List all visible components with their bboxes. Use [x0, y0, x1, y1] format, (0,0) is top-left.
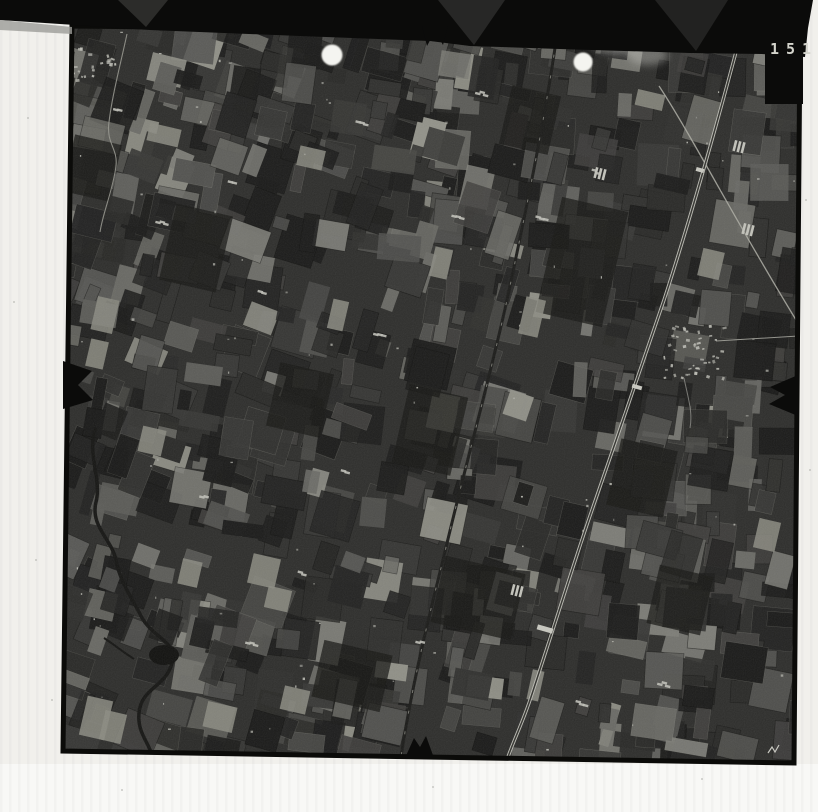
white-emulsion-dot: [574, 53, 593, 72]
frame-number-label: 151: [763, 40, 805, 86]
white-emulsion-dot: [322, 45, 343, 66]
aerial-photo-scan: [0, 0, 818, 812]
scanned-aerial-photo-page: 151: [0, 0, 818, 812]
aerial-photograph: [43, 0, 818, 786]
